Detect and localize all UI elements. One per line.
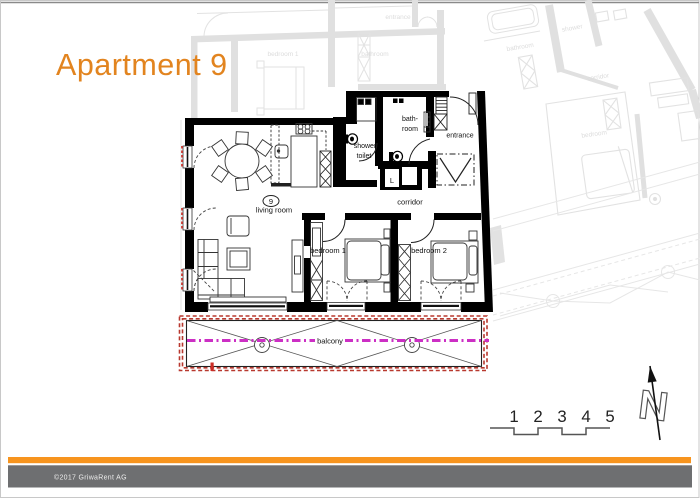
svg-text:room: room [402,126,418,133]
svg-text:toilet: toilet [357,153,372,160]
svg-text:bath-: bath- [402,116,419,123]
svg-text:3: 3 [557,407,566,426]
svg-text:1: 1 [509,407,518,426]
svg-text:balcony: balcony [317,337,343,346]
svg-text:4: 4 [581,407,590,426]
svg-text:bedroom 1: bedroom 1 [267,51,298,58]
svg-text:bedroom 1: bedroom 1 [310,246,346,255]
svg-text:living room: living room [256,206,292,215]
svg-text:5: 5 [605,407,614,426]
svg-text:©2017 GriwaRent AG: ©2017 GriwaRent AG [54,474,127,482]
svg-text:L: L [390,176,394,185]
svg-text:entrance: entrance [385,14,411,21]
svg-text:bathroom: bathroom [361,51,388,58]
svg-text:corridor: corridor [397,198,423,207]
svg-text:2: 2 [533,407,542,426]
svg-text:bedroom 2: bedroom 2 [411,246,447,255]
svg-text:shower: shower [354,143,377,150]
svg-text:Apartment 9: Apartment 9 [56,48,228,82]
svg-text:entrance: entrance [446,133,473,140]
